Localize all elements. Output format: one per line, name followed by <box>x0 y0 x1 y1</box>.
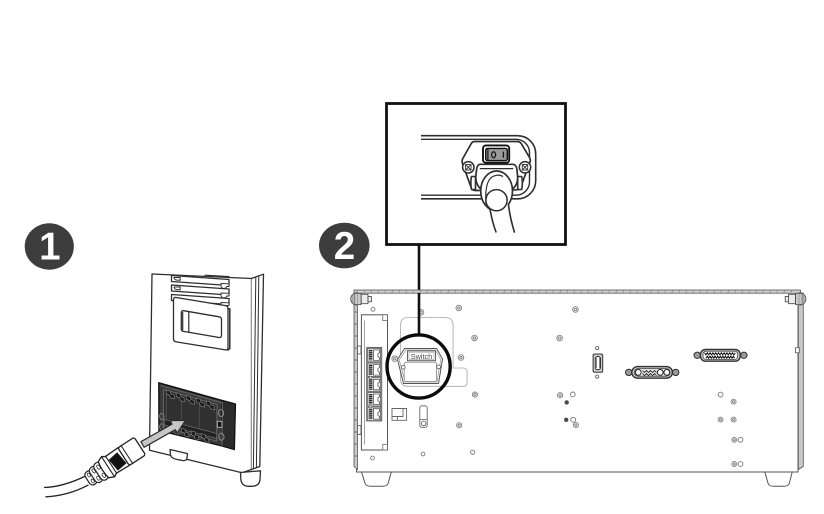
svg-text:1: 1 <box>39 225 60 268</box>
svg-text:Switch: Switch <box>411 352 433 361</box>
svg-text:2: 2 <box>334 225 355 268</box>
